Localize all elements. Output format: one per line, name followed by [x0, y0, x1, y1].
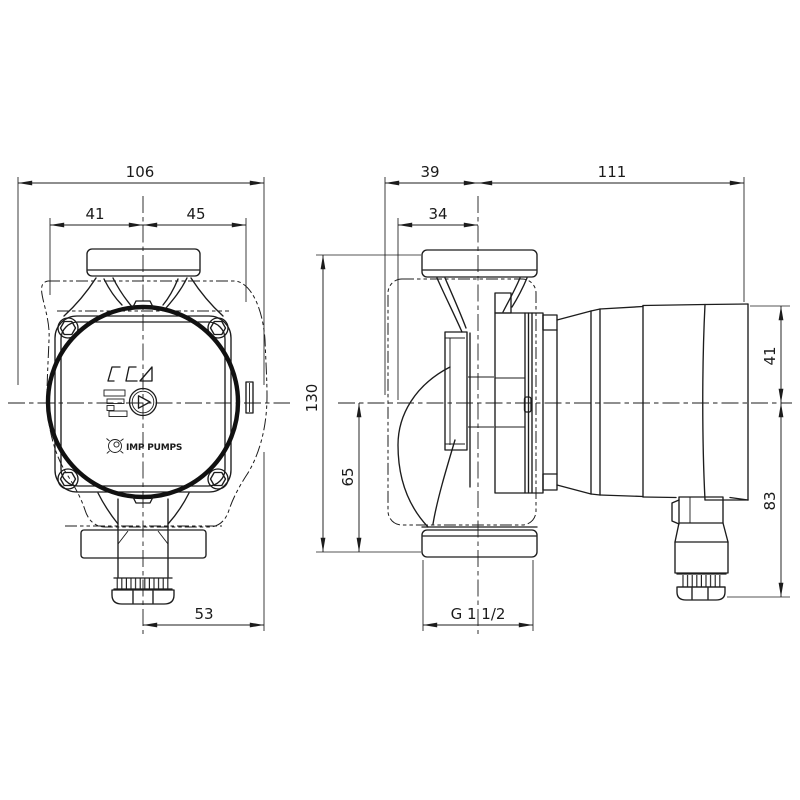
side-motor	[557, 304, 748, 500]
dim-port-to-port-label: 130	[303, 384, 321, 413]
side-control-box	[445, 293, 557, 493]
bolt-bottom-right-icon	[208, 469, 228, 489]
dim-overall-width-label: 106	[126, 163, 155, 181]
front-thread	[114, 578, 172, 589]
dimension-motor-upper-half: 41	[750, 306, 790, 403]
cable-connector	[672, 497, 728, 600]
dim-motor-lower-half-label: 83	[761, 491, 779, 510]
front-bottom-port	[81, 493, 206, 604]
side-neck-curves	[437, 278, 527, 332]
side-bottom-port-cap	[422, 530, 537, 557]
side-top-port-cap	[422, 250, 537, 277]
connector-thread	[677, 574, 726, 587]
dim-rear-offset-label: 39	[420, 163, 439, 181]
clamp-tab-top	[543, 315, 557, 330]
pump-mode-symbols-icon	[108, 367, 152, 381]
brand-logo: IMP PUMPS	[107, 439, 183, 454]
dim-half-width-label: 53	[194, 605, 213, 623]
dim-right-offset-label: 45	[186, 205, 205, 223]
bolt-bottom-left-icon	[58, 469, 78, 489]
dimension-right-offset: 45	[143, 205, 246, 302]
dimension-lower-height: 65	[339, 403, 359, 552]
side-dimensions: 39 111 34 130 65 41	[303, 163, 790, 631]
pump-dimensional-drawing: IMP PUMPS	[0, 0, 800, 800]
logo-gear-icon	[107, 439, 124, 454]
brand-logo-text: IMP PUMPS	[126, 443, 182, 453]
dim-motor-upper-half-label: 41	[761, 346, 779, 365]
front-view: IMP PUMPS	[42, 249, 267, 604]
dim-volute-offset-label: 34	[428, 205, 447, 223]
dimension-port-to-port: 130	[303, 255, 421, 552]
dim-lower-height-label: 65	[339, 467, 357, 486]
display-bars-icon	[104, 390, 127, 417]
dim-connection-thread-label: G 1 1/2	[451, 605, 506, 623]
front-top-port-cap	[87, 249, 200, 276]
dim-left-offset-label: 41	[85, 205, 104, 223]
connector-end-nut	[677, 587, 725, 600]
technical-drawing-page: IMP PUMPS	[0, 0, 800, 800]
front-body-phantom-outline	[42, 281, 267, 527]
side-view	[388, 250, 748, 600]
front-union-nut	[81, 530, 206, 558]
dim-motor-length-label: 111	[598, 163, 627, 181]
control-box-top-tab	[495, 293, 511, 313]
front-neck-curves	[64, 278, 223, 316]
clamp-tab-bottom	[543, 474, 557, 490]
dimension-volute-offset: 34	[398, 205, 478, 400]
